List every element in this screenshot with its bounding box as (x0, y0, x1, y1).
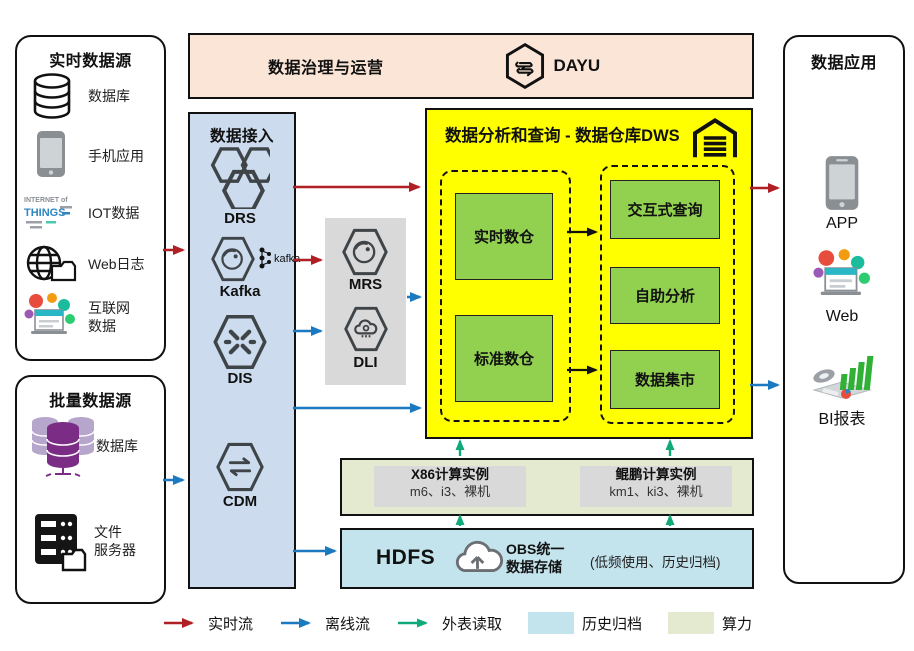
mrs-label: MRS (325, 276, 406, 293)
batch-source-label: 服务器 (94, 542, 136, 560)
unit-label: 标准数仓 (474, 348, 534, 369)
legend-item-archive: 历史归档 (528, 612, 642, 634)
legend-label: 实时流 (208, 613, 253, 634)
x86-models: m6、i3、裸机 (374, 484, 526, 501)
realtime-source-label: 手机应用 (88, 148, 144, 166)
kafka-service-icon (211, 236, 255, 282)
dli-icon (344, 306, 388, 352)
web-log-icon (24, 242, 78, 286)
realtime-source-label: 数据 (88, 318, 130, 336)
bi-report-icon (808, 350, 876, 402)
legend-label: 外表读取 (442, 613, 502, 634)
internet-data-icon (22, 292, 78, 342)
dws-title: 数据分析和查询 - 数据仓库DWS (445, 122, 680, 146)
phone-icon (36, 130, 66, 178)
svg-text:kafka: kafka (274, 253, 301, 265)
x86-title: X86计算实例 (374, 466, 526, 484)
kunpeng-compute-cell: 鲲鹏计算实例 km1、ki3、裸机 (580, 466, 732, 507)
bi-label: BI报表 (783, 405, 901, 429)
hdfs-label: HDFS (376, 546, 435, 570)
green-arrow-icon (396, 617, 434, 629)
mrs-icon (342, 228, 388, 276)
self-service-analysis-unit: 自助分析 (610, 267, 720, 324)
realtime-warehouse-unit: 实时数仓 (455, 193, 553, 280)
architecture-diagram: 实时数据源 数据库 手机应用 INTERNET of THINGS IOT数据 (0, 0, 914, 651)
kafka-label: Kafka (188, 283, 292, 300)
kunpeng-models: km1、ki3、裸机 (580, 484, 732, 501)
interactive-query-unit: 交互式查询 (610, 180, 720, 239)
legend-label: 离线流 (325, 613, 370, 634)
storage-box: HDFS OBS统一 数据存储 (低频使用、历史归档) (340, 528, 754, 589)
legend-item-offline: 离线流 (279, 613, 370, 634)
web-app-icon (810, 248, 874, 304)
red-arrow-icon (162, 617, 200, 629)
standard-warehouse-unit: 标准数仓 (455, 315, 553, 402)
web-label: Web (783, 308, 901, 326)
obs-label: 数据存储 (506, 559, 564, 577)
dli-label: DLI (325, 354, 406, 371)
unit-label: 自助分析 (635, 285, 695, 306)
batch-source-label: 数据库 (96, 438, 138, 456)
governance-title: 数据治理与运营 (268, 54, 384, 78)
dis-label: DIS (188, 370, 292, 387)
svg-text:INTERNET of: INTERNET of (24, 197, 68, 204)
cloud-upload-icon (454, 538, 506, 578)
app-phone-icon (824, 155, 860, 211)
file-server-icon (32, 512, 92, 574)
drs-icon (210, 147, 270, 209)
kafka-logo-icon: kafka (257, 245, 303, 271)
kunpeng-title: 鲲鹏计算实例 (580, 466, 732, 484)
batch-source-label: 文件 (94, 524, 136, 542)
legend: 实时流 离线流 外表读取 历史归档 算力 (0, 612, 914, 634)
warehouse-icon (691, 117, 739, 159)
compute-swatch (668, 612, 714, 634)
realtime-source-label: 互联网 (88, 300, 130, 318)
realtime-source-label: 数据库 (88, 88, 130, 106)
x86-compute-cell: X86计算实例 m6、i3、裸机 (374, 466, 526, 507)
obs-label: OBS统一 (506, 541, 564, 559)
batch-sources-title: 批量数据源 (17, 387, 164, 411)
data-apps-title: 数据应用 (785, 49, 903, 73)
realtime-source-label: IOT数据 (88, 205, 139, 223)
storage-note: (低频使用、历史归档) (590, 551, 721, 571)
realtime-source-label: Web日志 (88, 256, 145, 274)
data-access-title: 数据接入 (190, 124, 294, 146)
unit-label: 交互式查询 (627, 199, 702, 220)
cdm-label: CDM (188, 493, 292, 510)
realtime-sources-title: 实时数据源 (17, 47, 164, 71)
legend-item-realtime: 实时流 (162, 613, 253, 634)
app-label: APP (783, 215, 901, 233)
svg-text:THINGS: THINGS (24, 207, 66, 219)
batch-database-icon (26, 412, 100, 478)
legend-label: 历史归档 (582, 613, 642, 634)
unit-label: 数据集市 (635, 369, 695, 390)
dis-icon (213, 314, 267, 370)
compute-box: X86计算实例 m6、i3、裸机 鲲鹏计算实例 km1、ki3、裸机 (340, 458, 754, 516)
dayu-icon (504, 43, 546, 89)
blue-arrow-icon (279, 617, 317, 629)
archive-swatch (528, 612, 574, 634)
dayu-label: DAYU (554, 56, 601, 76)
legend-label: 算力 (722, 613, 752, 634)
iot-wordcloud-icon: INTERNET of THINGS (20, 190, 80, 234)
legend-item-compute: 算力 (668, 612, 752, 634)
unit-label: 实时数仓 (474, 226, 534, 247)
drs-label: DRS (188, 210, 292, 227)
governance-banner: 数据治理与运营 DAYU (188, 33, 754, 99)
legend-item-external: 外表读取 (396, 613, 502, 634)
data-mart-unit: 数据集市 (610, 350, 720, 409)
database-icon (30, 72, 74, 120)
cdm-icon (216, 442, 264, 492)
